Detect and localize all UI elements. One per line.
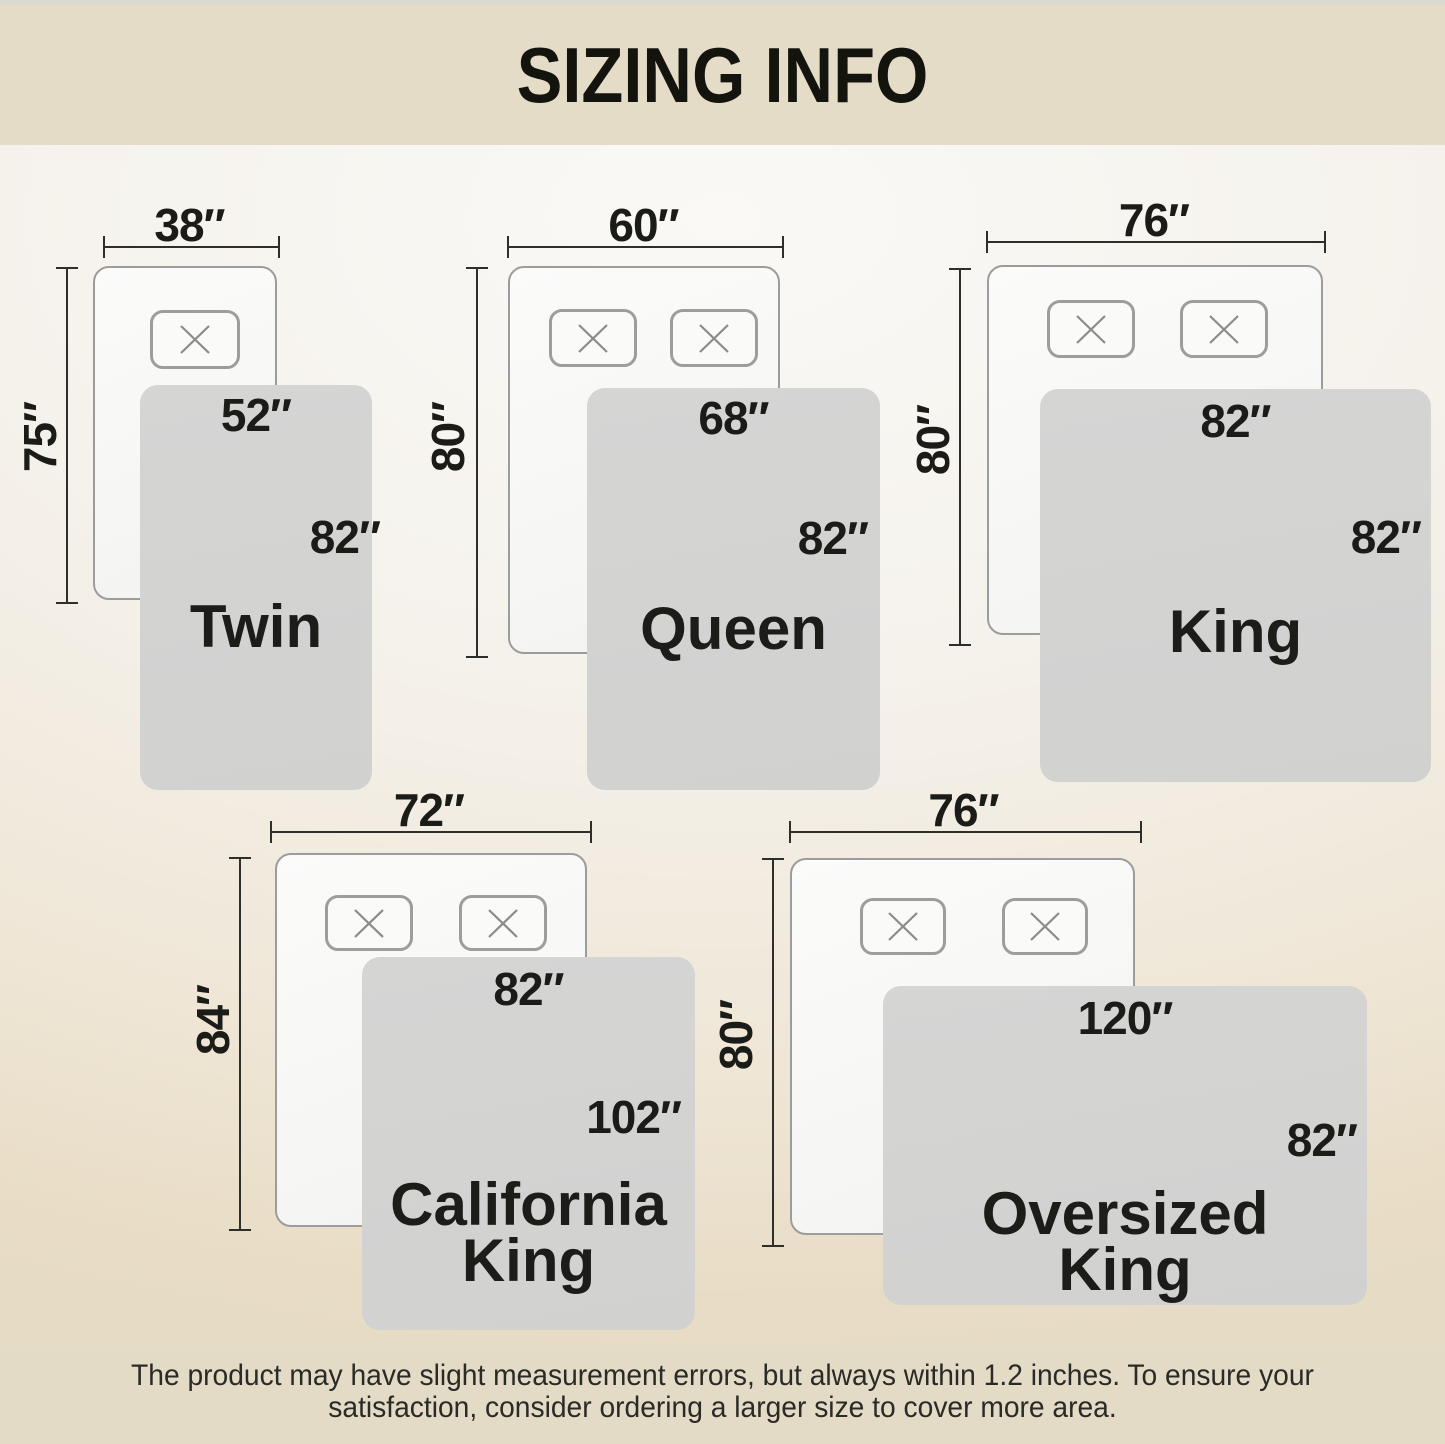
- pillow-x-icon: [1026, 910, 1064, 943]
- bed-name-label: California King: [364, 1177, 694, 1289]
- bed-name-label: Twin: [140, 599, 372, 655]
- blanket: 68″ 82″ Queen: [587, 388, 880, 790]
- pillow: [670, 309, 758, 367]
- blanket-width-label: 120″: [883, 994, 1367, 1042]
- bed-width-dim-label: 60″: [507, 201, 780, 249]
- disclaimer-line-1: The product may have slight measurement …: [43, 1360, 1401, 1392]
- length-dimension-line: [762, 858, 784, 1247]
- pillow-x-icon: [695, 322, 733, 355]
- pillow: [1180, 300, 1268, 358]
- blanket: 52″ 82″ Twin: [140, 385, 372, 790]
- blanket-length-label: 102″: [586, 1093, 681, 1141]
- pillow-x-icon: [176, 323, 214, 356]
- blanket-length-label: 82″: [1351, 513, 1421, 561]
- pillow-x-icon: [484, 907, 522, 940]
- pillow: [150, 310, 240, 369]
- bed-width-dim-label: 76″: [789, 786, 1138, 834]
- bed-name-label: King: [1040, 604, 1431, 660]
- bed-name-label: Queen: [587, 601, 880, 657]
- pillow-x-icon: [1205, 313, 1243, 346]
- bed-length-dim-label: 84″: [187, 940, 239, 1100]
- blanket-width-label: 82″: [362, 965, 695, 1013]
- blanket-width-label: 68″: [587, 394, 880, 442]
- pillow-x-icon: [1072, 313, 1110, 346]
- blanket-length-label: 82″: [798, 514, 868, 562]
- pillow-x-icon: [350, 907, 388, 940]
- pillow: [1002, 898, 1088, 955]
- blanket-length-label: 82″: [310, 513, 380, 561]
- pillow-x-icon: [574, 322, 612, 355]
- page-title: SIZING INFO: [87, 30, 1359, 120]
- bed-length-dim-label: 80″: [422, 357, 474, 517]
- bed-length-dim-label: 80″: [907, 360, 959, 520]
- bed-length-dim-label: 75″: [14, 357, 66, 517]
- bed-length-dim-label: 80″: [710, 955, 762, 1115]
- blanket-width-label: 52″: [140, 391, 372, 439]
- pillow: [325, 895, 413, 951]
- blanket: 120″ 82″ Oversized King: [883, 986, 1367, 1305]
- pillow: [860, 898, 946, 955]
- pillow-x-icon: [884, 910, 922, 943]
- blanket-length-label: 82″: [1287, 1116, 1357, 1164]
- bed-width-dim-label: 76″: [986, 196, 1322, 244]
- pillow: [549, 309, 637, 367]
- bed-name-label: Oversized King: [960, 1186, 1290, 1298]
- pillow: [459, 895, 547, 951]
- blanket: 82″ 102″ California King: [362, 957, 695, 1330]
- pillow: [1047, 300, 1135, 358]
- blanket-width-label: 82″: [1040, 397, 1431, 445]
- sizing-info-page: SIZING INFO 38″ 75″ 52″ 82″ Twin 60″ 80″: [0, 0, 1445, 1444]
- bed-width-dim-label: 38″: [103, 201, 276, 249]
- bed-width-dim-label: 72″: [270, 786, 588, 834]
- blanket: 82″ 82″ King: [1040, 389, 1431, 782]
- disclaimer-line-2: satisfaction, consider ordering a larger…: [43, 1392, 1401, 1424]
